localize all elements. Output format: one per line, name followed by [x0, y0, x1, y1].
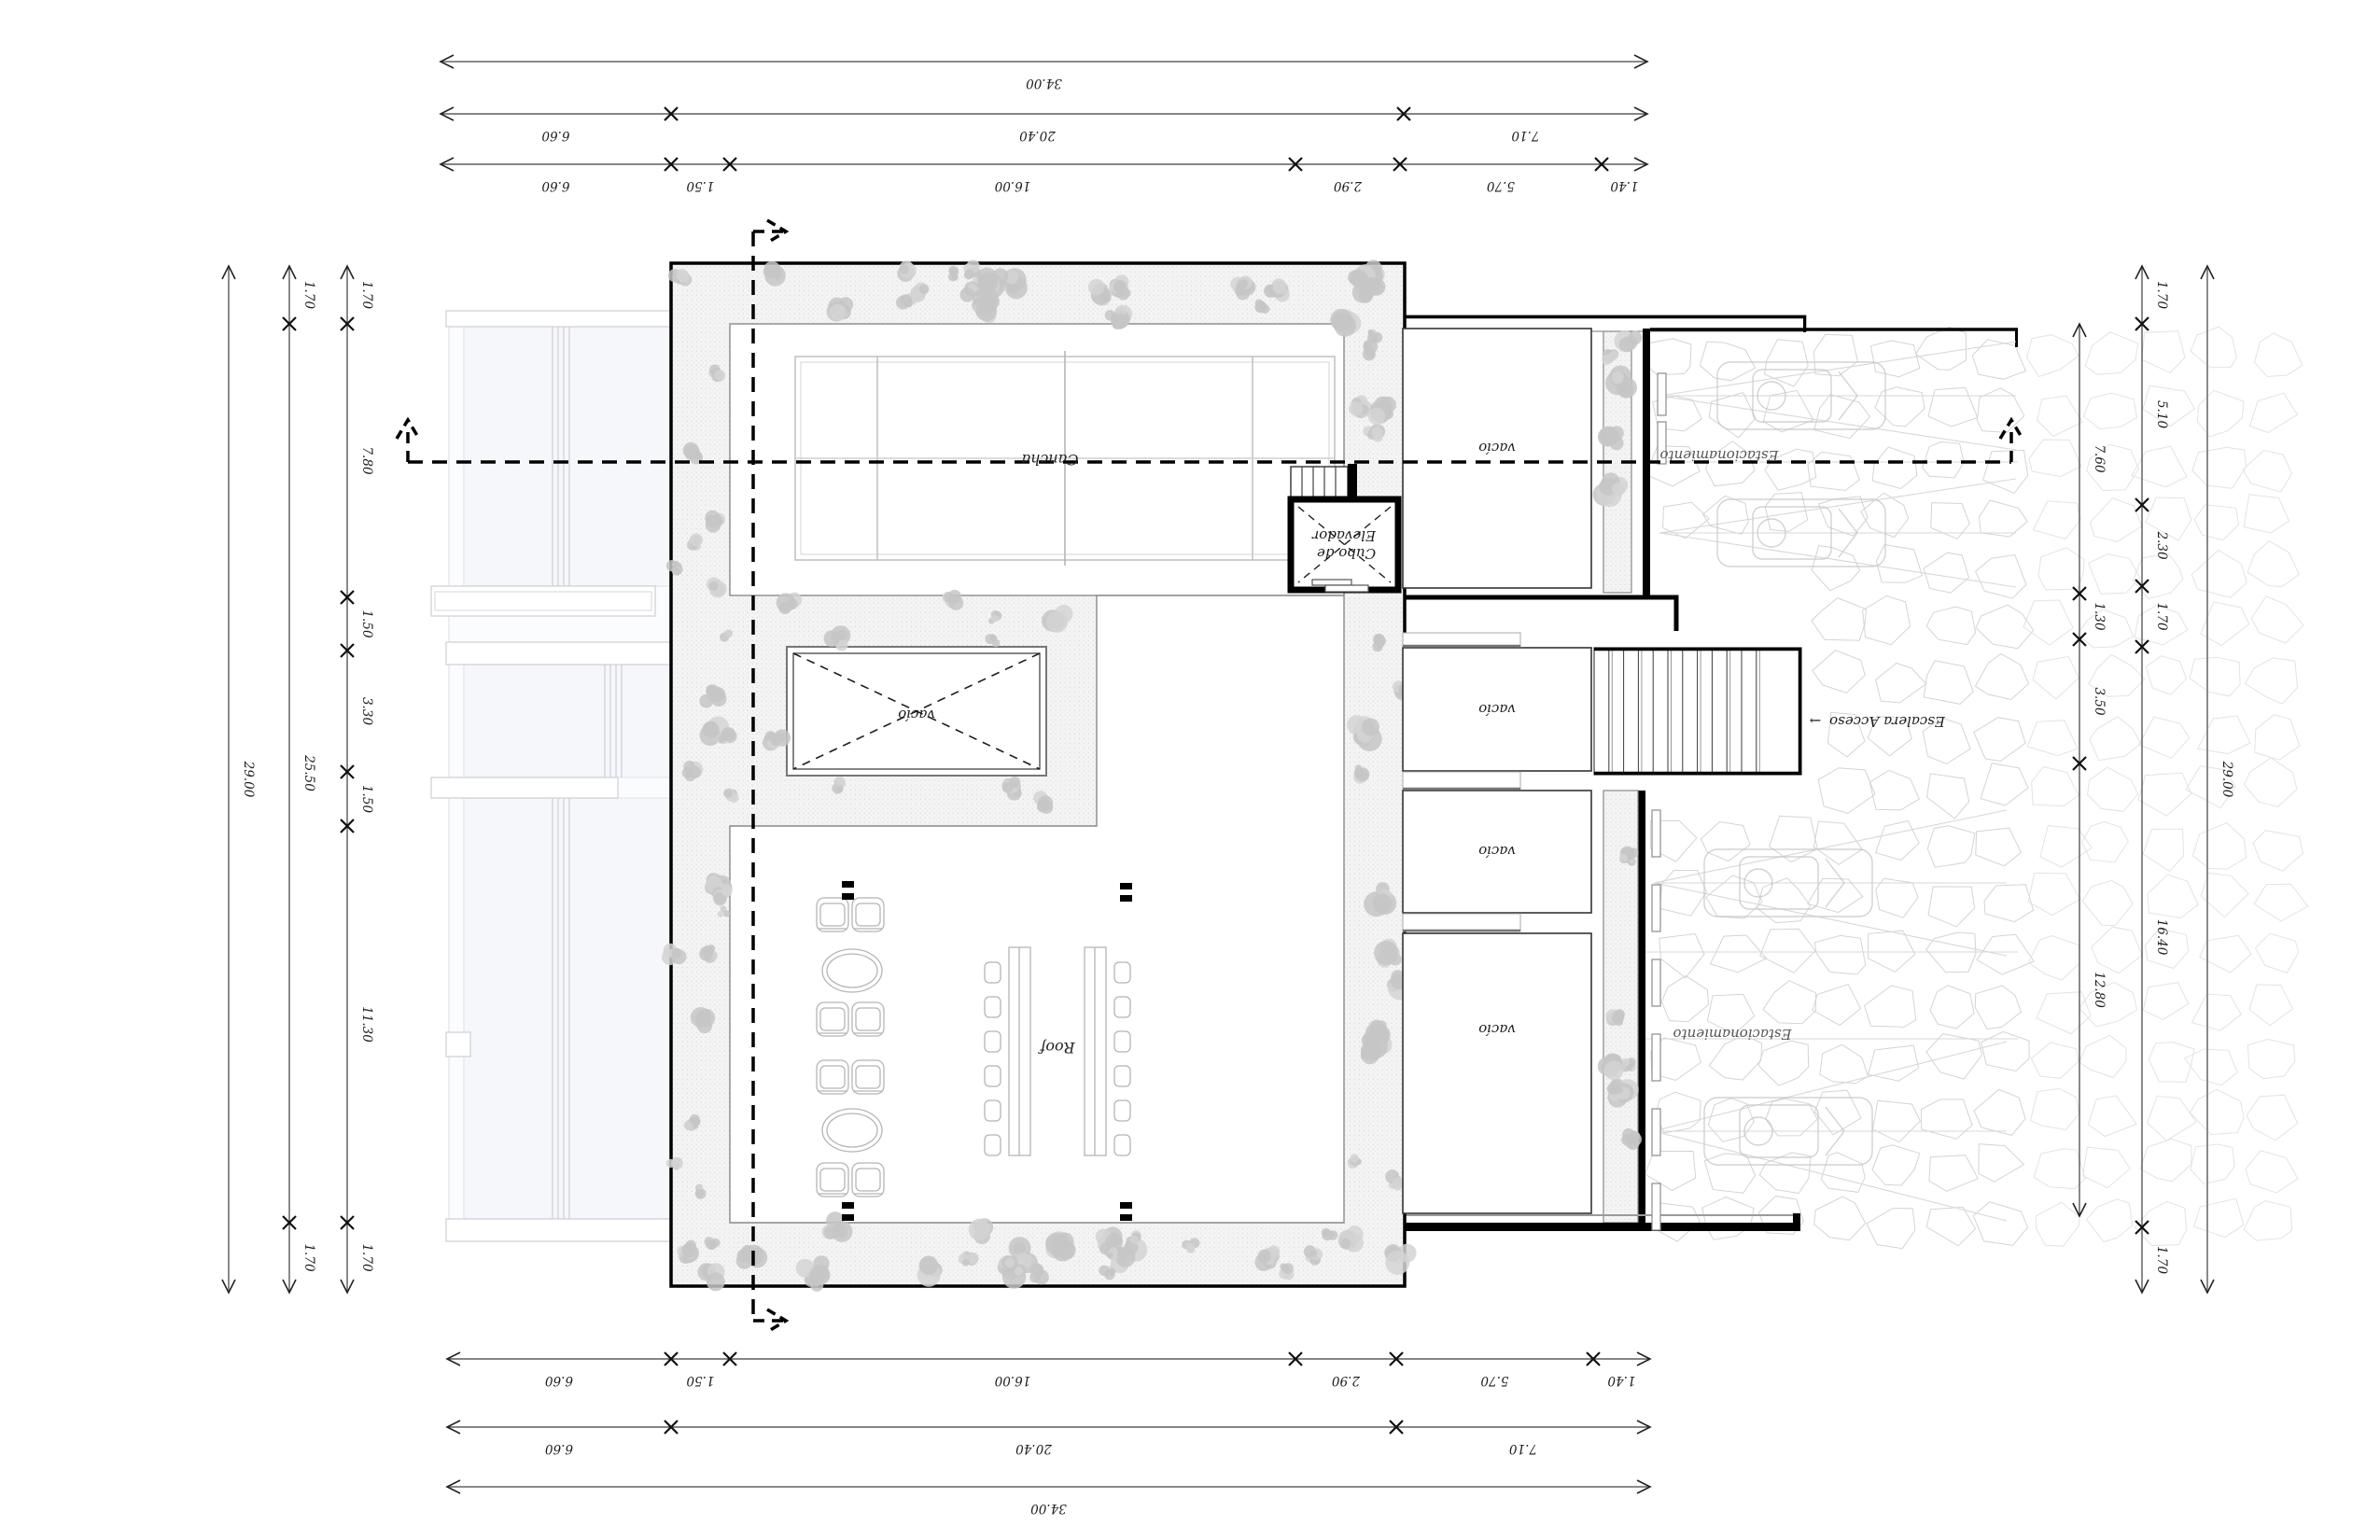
stone-tile: [1981, 1031, 2030, 1071]
stone-tile: [2032, 766, 2079, 805]
stone-tile: [2038, 548, 2084, 590]
stone-tile: [2090, 717, 2141, 761]
stone-tile: [1872, 1145, 1920, 1185]
stone-paving: [1645, 327, 2308, 1248]
stone-tile: [1765, 340, 1809, 386]
dim-label: 34.00: [1026, 76, 1062, 91]
chair: [985, 1031, 1001, 1052]
stone-tile: [2255, 715, 2300, 760]
stone-tile: [2089, 554, 2140, 595]
stone-tile: [1658, 1203, 1701, 1241]
stone-tile: [1924, 661, 1973, 705]
dimension-line: 1.7025.501.70: [283, 266, 316, 1293]
chair: [1114, 1031, 1130, 1052]
stone-tile: [2034, 501, 2081, 539]
stone-tile: [2034, 1149, 2085, 1189]
armchair: [852, 1002, 884, 1036]
stone-tile: [1763, 981, 1816, 1024]
stone-tile: [1659, 934, 1704, 978]
stone-tile: [1867, 1209, 1915, 1249]
stone-tile: [2028, 874, 2080, 916]
stone-tile: [2246, 658, 2298, 704]
dimension-line: 6.6020.407.10: [447, 1421, 1650, 1456]
stone-tile: [1766, 1099, 1817, 1136]
stone-tile: [1821, 1153, 1865, 1193]
stone-tile: [1924, 553, 1969, 593]
stone-tile: [1981, 763, 2028, 805]
fence-post: [1658, 373, 1666, 415]
stone-tile: [2191, 327, 2236, 368]
dim-label: 2.30: [2154, 530, 2169, 559]
chair: [985, 1100, 1001, 1121]
fence-post: [1652, 1183, 1660, 1230]
stone-tile: [1758, 1041, 1809, 1085]
stone-tile: [1863, 596, 1911, 645]
stone-tile: [1980, 500, 2028, 537]
stone-tile: [2036, 1202, 2079, 1246]
stone-tile: [2191, 994, 2241, 1030]
stone-tile: [1709, 393, 1756, 438]
stone-tile: [1926, 607, 1975, 644]
stone-tile: [2246, 1151, 2298, 1193]
stone-tile: [1976, 828, 2022, 866]
tree-icon: [948, 266, 959, 282]
stone-tile: [2088, 767, 2138, 811]
roof-marker: [1120, 1214, 1132, 1221]
dimension-line: 1.707.801.503.301.5011.301.70: [341, 266, 374, 1293]
stone-tile: [2249, 985, 2292, 1026]
stone-tile: [1706, 875, 1762, 918]
tree-icon: [1605, 1009, 1625, 1026]
stone-tile: [1975, 986, 2021, 1029]
fence-post: [1652, 810, 1660, 857]
stone-tile: [1976, 555, 2026, 599]
elevator-label-line2: Elevador: [1311, 527, 1377, 544]
stone-tile: [1974, 718, 2025, 762]
stone-tile: [2087, 1199, 2133, 1242]
dim-label: 1.70: [301, 281, 316, 309]
chair: [1114, 1135, 1130, 1155]
stone-tile: [2083, 1147, 2130, 1188]
roof-marker: [1120, 1202, 1132, 1209]
vacio-label-p2: vacío: [1478, 701, 1516, 718]
stone-tile: [1927, 826, 1975, 867]
armchair: [852, 898, 884, 931]
stone-tile: [1759, 1153, 1811, 1194]
stone-tile: [2251, 596, 2303, 643]
stone-tile: [1927, 774, 1969, 819]
stone-tile: [2082, 821, 2129, 862]
stone-tile: [2037, 992, 2091, 1034]
stone-tile: [1926, 1034, 1982, 1079]
escalera-arrow-icon: →: [1809, 712, 1821, 729]
stone-tile: [1702, 1197, 1754, 1240]
stone-tile: [2190, 657, 2240, 696]
chair: [985, 1135, 1001, 1155]
stone-tile: [1760, 929, 1815, 973]
dim-label: 1.70: [359, 281, 374, 309]
oval-table: [827, 954, 877, 987]
parking-wedge: [1659, 479, 2016, 587]
stone-tile: [2255, 333, 2303, 377]
dim-label: 1.50: [686, 1373, 714, 1388]
stone-tile: [1872, 447, 1917, 489]
fence-post: [1652, 959, 1660, 1006]
stone-tile: [2190, 1089, 2244, 1134]
stone-tile: [2198, 716, 2250, 754]
dim-label: 2.90: [1332, 1373, 1361, 1388]
estacionamiento-upper-label: Estacionamiento: [1659, 447, 1779, 464]
stone-tile: [1813, 651, 1865, 693]
stone-tile: [1973, 1202, 2027, 1246]
parking-wedge: [1654, 1042, 2007, 1221]
stone-tile: [2143, 829, 2183, 871]
dim-label: 1.70: [359, 1243, 374, 1271]
stone-tile: [2028, 936, 2079, 981]
stone-tile: [2031, 1088, 2079, 1129]
dim-label: 16.00: [994, 178, 1030, 193]
tree-icon: [1279, 1263, 1294, 1280]
stone-tile: [2033, 657, 2079, 699]
dim-label: 7.10: [1511, 128, 1539, 143]
stone-tile: [1870, 341, 1919, 377]
fence-post: [1652, 885, 1660, 931]
stone-tile: [1812, 546, 1859, 591]
stone-tile: [2135, 1201, 2187, 1245]
stone-tile: [2245, 758, 2297, 806]
dim-label: 16.00: [994, 1373, 1030, 1388]
parking-space-lines: [1645, 342, 2018, 1221]
stone-tile: [1875, 387, 1925, 427]
dim-label: 5.70: [1487, 178, 1515, 193]
stone-tile: [2092, 927, 2142, 973]
stone-tile: [2023, 600, 2073, 645]
stone-tile: [1922, 1099, 1973, 1139]
stone-tile: [2088, 1096, 2136, 1137]
stone-tile: [1876, 821, 1920, 861]
stone-tile: [1930, 986, 1974, 1029]
dimension-line: 6.601.5016.002.905.701.40: [441, 158, 1647, 193]
armchair: [817, 898, 848, 931]
stone-tile: [2027, 335, 2079, 377]
stone-tile: [2244, 1201, 2292, 1240]
stone-tile: [1701, 822, 1750, 861]
stone-tile: [1869, 931, 1915, 972]
dim-label: 6.60: [545, 1373, 573, 1388]
tree-icon: [1045, 1231, 1076, 1261]
dim-label: 6.60: [545, 1441, 573, 1456]
tree-icon: [1384, 1244, 1416, 1275]
stone-tile: [1872, 1100, 1920, 1142]
vacio-label-p1: vacío: [1478, 440, 1516, 456]
stone-tile: [1812, 598, 1866, 641]
stone-tile: [1977, 388, 2023, 433]
vacio-label-small-patio: vacío: [898, 707, 935, 723]
stone-tile: [1928, 387, 1978, 427]
dim-label: 1.70: [301, 1243, 316, 1271]
stone-tile: [2244, 495, 2289, 533]
dimension-line: 34.00: [447, 1480, 1650, 1516]
dimension-line: 29.00: [2201, 266, 2234, 1293]
stone-tile: [1646, 339, 1691, 375]
stone-tile: [1929, 1155, 1978, 1192]
dim-label: 20.40: [1015, 1441, 1053, 1456]
dim-label: 1.50: [359, 785, 374, 813]
tree-icon: [1598, 427, 1624, 451]
stone-tile: [1703, 496, 1749, 534]
dim-label: 34.00: [1030, 1501, 1067, 1516]
stone-tile: [2091, 498, 2142, 542]
dim-label: 2.90: [1334, 178, 1363, 193]
roof-label: Roof: [1037, 1039, 1075, 1057]
armchair: [852, 1060, 884, 1094]
stone-tile: [2197, 390, 2244, 437]
stone-tile: [2247, 541, 2299, 587]
estacionamiento-area: [1645, 342, 2018, 1230]
stone-tile: [2194, 505, 2238, 540]
stone-tile: [2247, 1095, 2298, 1141]
stone-tile: [1770, 816, 1818, 861]
stone-tile: [1704, 1154, 1755, 1193]
stone-tile: [1974, 1089, 2025, 1135]
dim-label: 1.50: [686, 178, 714, 193]
dimension-line: 29.00: [222, 266, 256, 1293]
tree-icon: [1614, 330, 1642, 352]
escalera-acceso-label: Escalera Acceso: [1829, 713, 1946, 730]
dim-label: 1.40: [1610, 178, 1638, 193]
stone-tile: [2194, 1198, 2244, 1237]
stone-tile: [2148, 1096, 2197, 1141]
stone-tile: [2255, 933, 2298, 973]
stone-tile: [1869, 770, 1919, 809]
plan-drawing: 34.006.6020.407.106.601.5016.002.905.701…: [0, 0, 2380, 1540]
stone-tile: [1926, 1207, 1976, 1245]
stone-tile: [1814, 1197, 1866, 1240]
stone-tile: [1984, 885, 2034, 922]
armchair: [817, 1002, 848, 1036]
roof-marker: [842, 893, 854, 900]
stone-tile: [1818, 768, 1875, 814]
dim-label: 1.70: [2154, 1246, 2169, 1274]
stone-tile: [2079, 1035, 2127, 1077]
stone-tile: [2085, 332, 2138, 374]
dimension-line: 6.601.5016.002.905.701.40: [447, 1352, 1650, 1388]
stone-tile: [1814, 935, 1865, 974]
stone-tile: [2037, 396, 2083, 436]
chair: [985, 997, 1001, 1017]
stone-tile: [1876, 878, 1918, 917]
stone-tile: [2142, 331, 2185, 373]
dim-label: 1.30: [2092, 602, 2107, 630]
dimension-line: 34.00: [441, 55, 1647, 91]
stone-tile: [2191, 1144, 2234, 1184]
dim-label: 1.70: [2154, 281, 2169, 309]
dimension-line: 6.6020.407.10: [441, 107, 1647, 143]
dim-label: 5.70: [1480, 1373, 1508, 1388]
stone-tile: [1813, 985, 1861, 1026]
stone-tile: [2132, 446, 2187, 487]
dim-label: 29.00: [2219, 761, 2234, 798]
stone-tile: [2192, 447, 2247, 488]
stone-tile: [2143, 983, 2188, 1020]
stone-tile: [2250, 393, 2298, 432]
access-stairs: [1594, 648, 1801, 775]
dim-label: 3.30: [359, 697, 374, 725]
parking-wedge: [1659, 342, 2016, 450]
dim-label: 16.40: [2154, 919, 2169, 956]
chair: [1114, 962, 1130, 983]
vacio-label-p4: vacío: [1478, 1021, 1516, 1038]
dimension-line: 7.601.303.5012.80: [2073, 324, 2107, 1216]
stone-tile: [2253, 831, 2303, 872]
stone-tile: [1916, 327, 1967, 370]
chair: [1114, 997, 1130, 1017]
stone-tile: [1820, 1044, 1869, 1084]
stone-tile: [2247, 1039, 2295, 1078]
stone-tile: [1923, 441, 1965, 478]
roof-marker: [842, 1202, 854, 1209]
chair: [1114, 1100, 1130, 1121]
stone-tile: [1876, 545, 1922, 583]
roof-marker: [842, 881, 854, 888]
armchair: [817, 1060, 848, 1094]
dim-label: 7.10: [1509, 1441, 1537, 1456]
dim-label: 1.40: [1607, 1373, 1635, 1388]
dim-label: 6.60: [541, 178, 569, 193]
dim-label: 3.50: [2092, 687, 2107, 715]
stone-tile: [1869, 1045, 1919, 1081]
dim-label: 7.80: [359, 446, 374, 474]
stone-tile: [1977, 934, 2034, 974]
elevator-label-line1: Cubo de: [1317, 545, 1376, 562]
stone-tile: [2138, 773, 2191, 816]
stone-tile: [1813, 821, 1862, 864]
stone-tile: [1656, 1092, 1701, 1133]
dim-label: 1.50: [359, 609, 374, 637]
dim-label: 7.60: [2092, 444, 2107, 472]
stone-tile: [2027, 721, 2078, 756]
stone-tile: [2133, 553, 2183, 599]
stone-tile: [2185, 1049, 2238, 1085]
roof-marker: [842, 1214, 854, 1221]
stone-tile: [2243, 451, 2291, 493]
stone-tile: [2029, 440, 2081, 476]
stone-tile: [2191, 551, 2247, 598]
stone-tile: [2140, 1140, 2191, 1182]
dim-label: 6.60: [541, 128, 569, 143]
stone-tile: [1763, 390, 1813, 431]
stone-tile: [2079, 983, 2137, 1027]
chair: [1114, 1066, 1130, 1086]
stone-tile: [1979, 1144, 2024, 1183]
stone-tile: [2146, 656, 2186, 695]
stone-tile: [2084, 393, 2137, 428]
stone-tile: [1876, 663, 1926, 703]
stone-tile: [1983, 450, 2028, 493]
stone-tile: [1711, 935, 1767, 973]
stone-tile: [1975, 654, 2028, 700]
stone-tile: [1976, 605, 2034, 649]
stone-tile: [2082, 881, 2133, 926]
stone-tile: [1928, 887, 1975, 927]
estacionamiento-lower-label: Estacionamiento: [1673, 1026, 1792, 1043]
stone-tile: [2031, 1043, 2078, 1078]
tree-icon: [1598, 1053, 1624, 1080]
stone-tile: [1865, 986, 1916, 1028]
chair: [985, 1066, 1001, 1086]
dim-label: 12.80: [2092, 972, 2107, 1008]
stone-tile: [1700, 342, 1755, 381]
dim-label: 11.30: [359, 1006, 374, 1043]
roof-marker: [1120, 883, 1132, 889]
chair: [985, 962, 1001, 983]
dim-label: 25.50: [301, 754, 316, 791]
floor-plan-sheet: 34.006.6020.407.106.601.5016.002.905.701…: [0, 0, 2380, 1540]
oval-table: [827, 1113, 877, 1147]
vacio-label-p3: vacío: [1478, 843, 1516, 860]
stone-tile: [2148, 875, 2198, 917]
fence-post: [1652, 1034, 1660, 1081]
dim-label: 5.10: [2154, 400, 2169, 428]
dim-label: 29.00: [241, 761, 256, 798]
ghost-adjacent-building: [431, 311, 679, 1241]
cancha-label: Cancha: [1022, 451, 1079, 469]
stone-tile: [2254, 884, 2308, 921]
fence-post: [1652, 1109, 1660, 1155]
armchair: [852, 1163, 884, 1197]
stone-tile: [2139, 717, 2190, 758]
dim-label: 1.70: [2154, 602, 2169, 630]
armchair: [817, 1163, 848, 1197]
stone-tile: [1661, 976, 1708, 1022]
roof-marker: [1120, 895, 1132, 902]
stone-tile: [2192, 823, 2246, 870]
dim-label: 20.40: [1019, 128, 1057, 143]
